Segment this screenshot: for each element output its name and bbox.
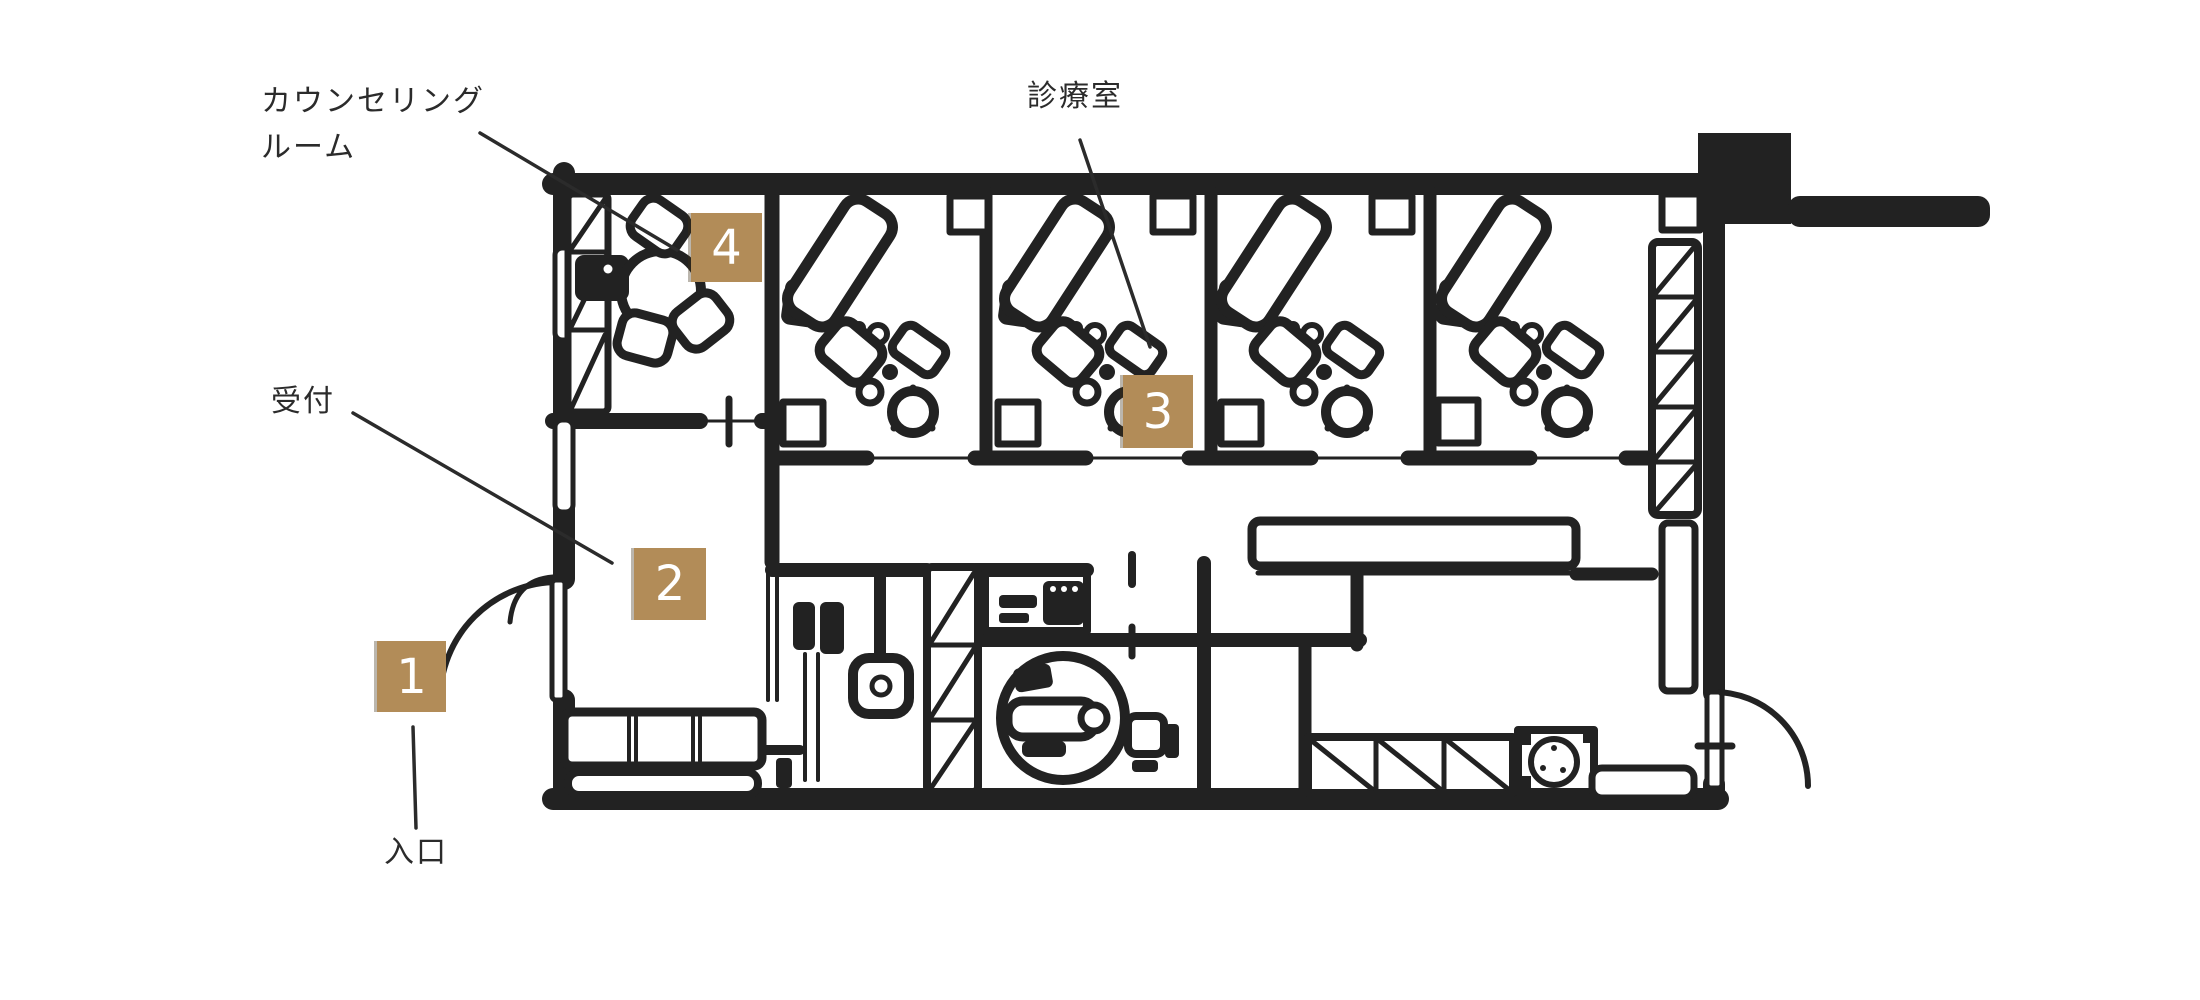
side-equipment [1128, 716, 1179, 772]
counseling-shelf [568, 194, 608, 412]
sterilization-shelf [927, 567, 978, 792]
marker-2-reception: 2 [634, 548, 706, 620]
marker-4-counseling-room: 4 [691, 213, 762, 282]
marker-1-entrance: 1 [377, 641, 446, 712]
marker-3-treatment-room: 3 [1123, 375, 1193, 448]
leader-line-entrance [413, 727, 416, 828]
label-counseling-room-line1: カウンセリング [261, 79, 485, 125]
back-room-equipment [776, 602, 909, 788]
xray-room [985, 573, 1179, 780]
fan-unit [1518, 730, 1594, 792]
corridor-counter [1252, 521, 1576, 573]
counter-strip [1592, 768, 1694, 798]
reception-bench [564, 712, 762, 795]
label-counseling-room-line2: ルーム [261, 125, 485, 171]
exit-door [1698, 692, 1808, 788]
entrance-door [440, 577, 565, 700]
dental-chair-1 [780, 193, 949, 433]
label-entrance: 入口 [384, 830, 448, 876]
label-counseling-room: カウンセリング ルーム [261, 79, 485, 171]
sink-counter [985, 573, 1087, 631]
counseling-chair [614, 310, 676, 366]
dental-chair-3 [1214, 193, 1383, 433]
tall-cabinet [1662, 523, 1695, 691]
low-cabinet [1308, 737, 1513, 793]
counseling-chair [667, 288, 735, 355]
right-shelving-strip [1652, 242, 1698, 515]
label-reception: 受付 [271, 379, 335, 425]
label-treatment-room: 診療室 [1027, 74, 1123, 120]
pillar-and-beam [1698, 133, 1990, 227]
panoramic-xray-unit [1001, 656, 1125, 780]
floor-plan-canvas: カウンセリング ルーム 診療室 受付 入口 1 2 3 4 [0, 0, 2200, 1000]
